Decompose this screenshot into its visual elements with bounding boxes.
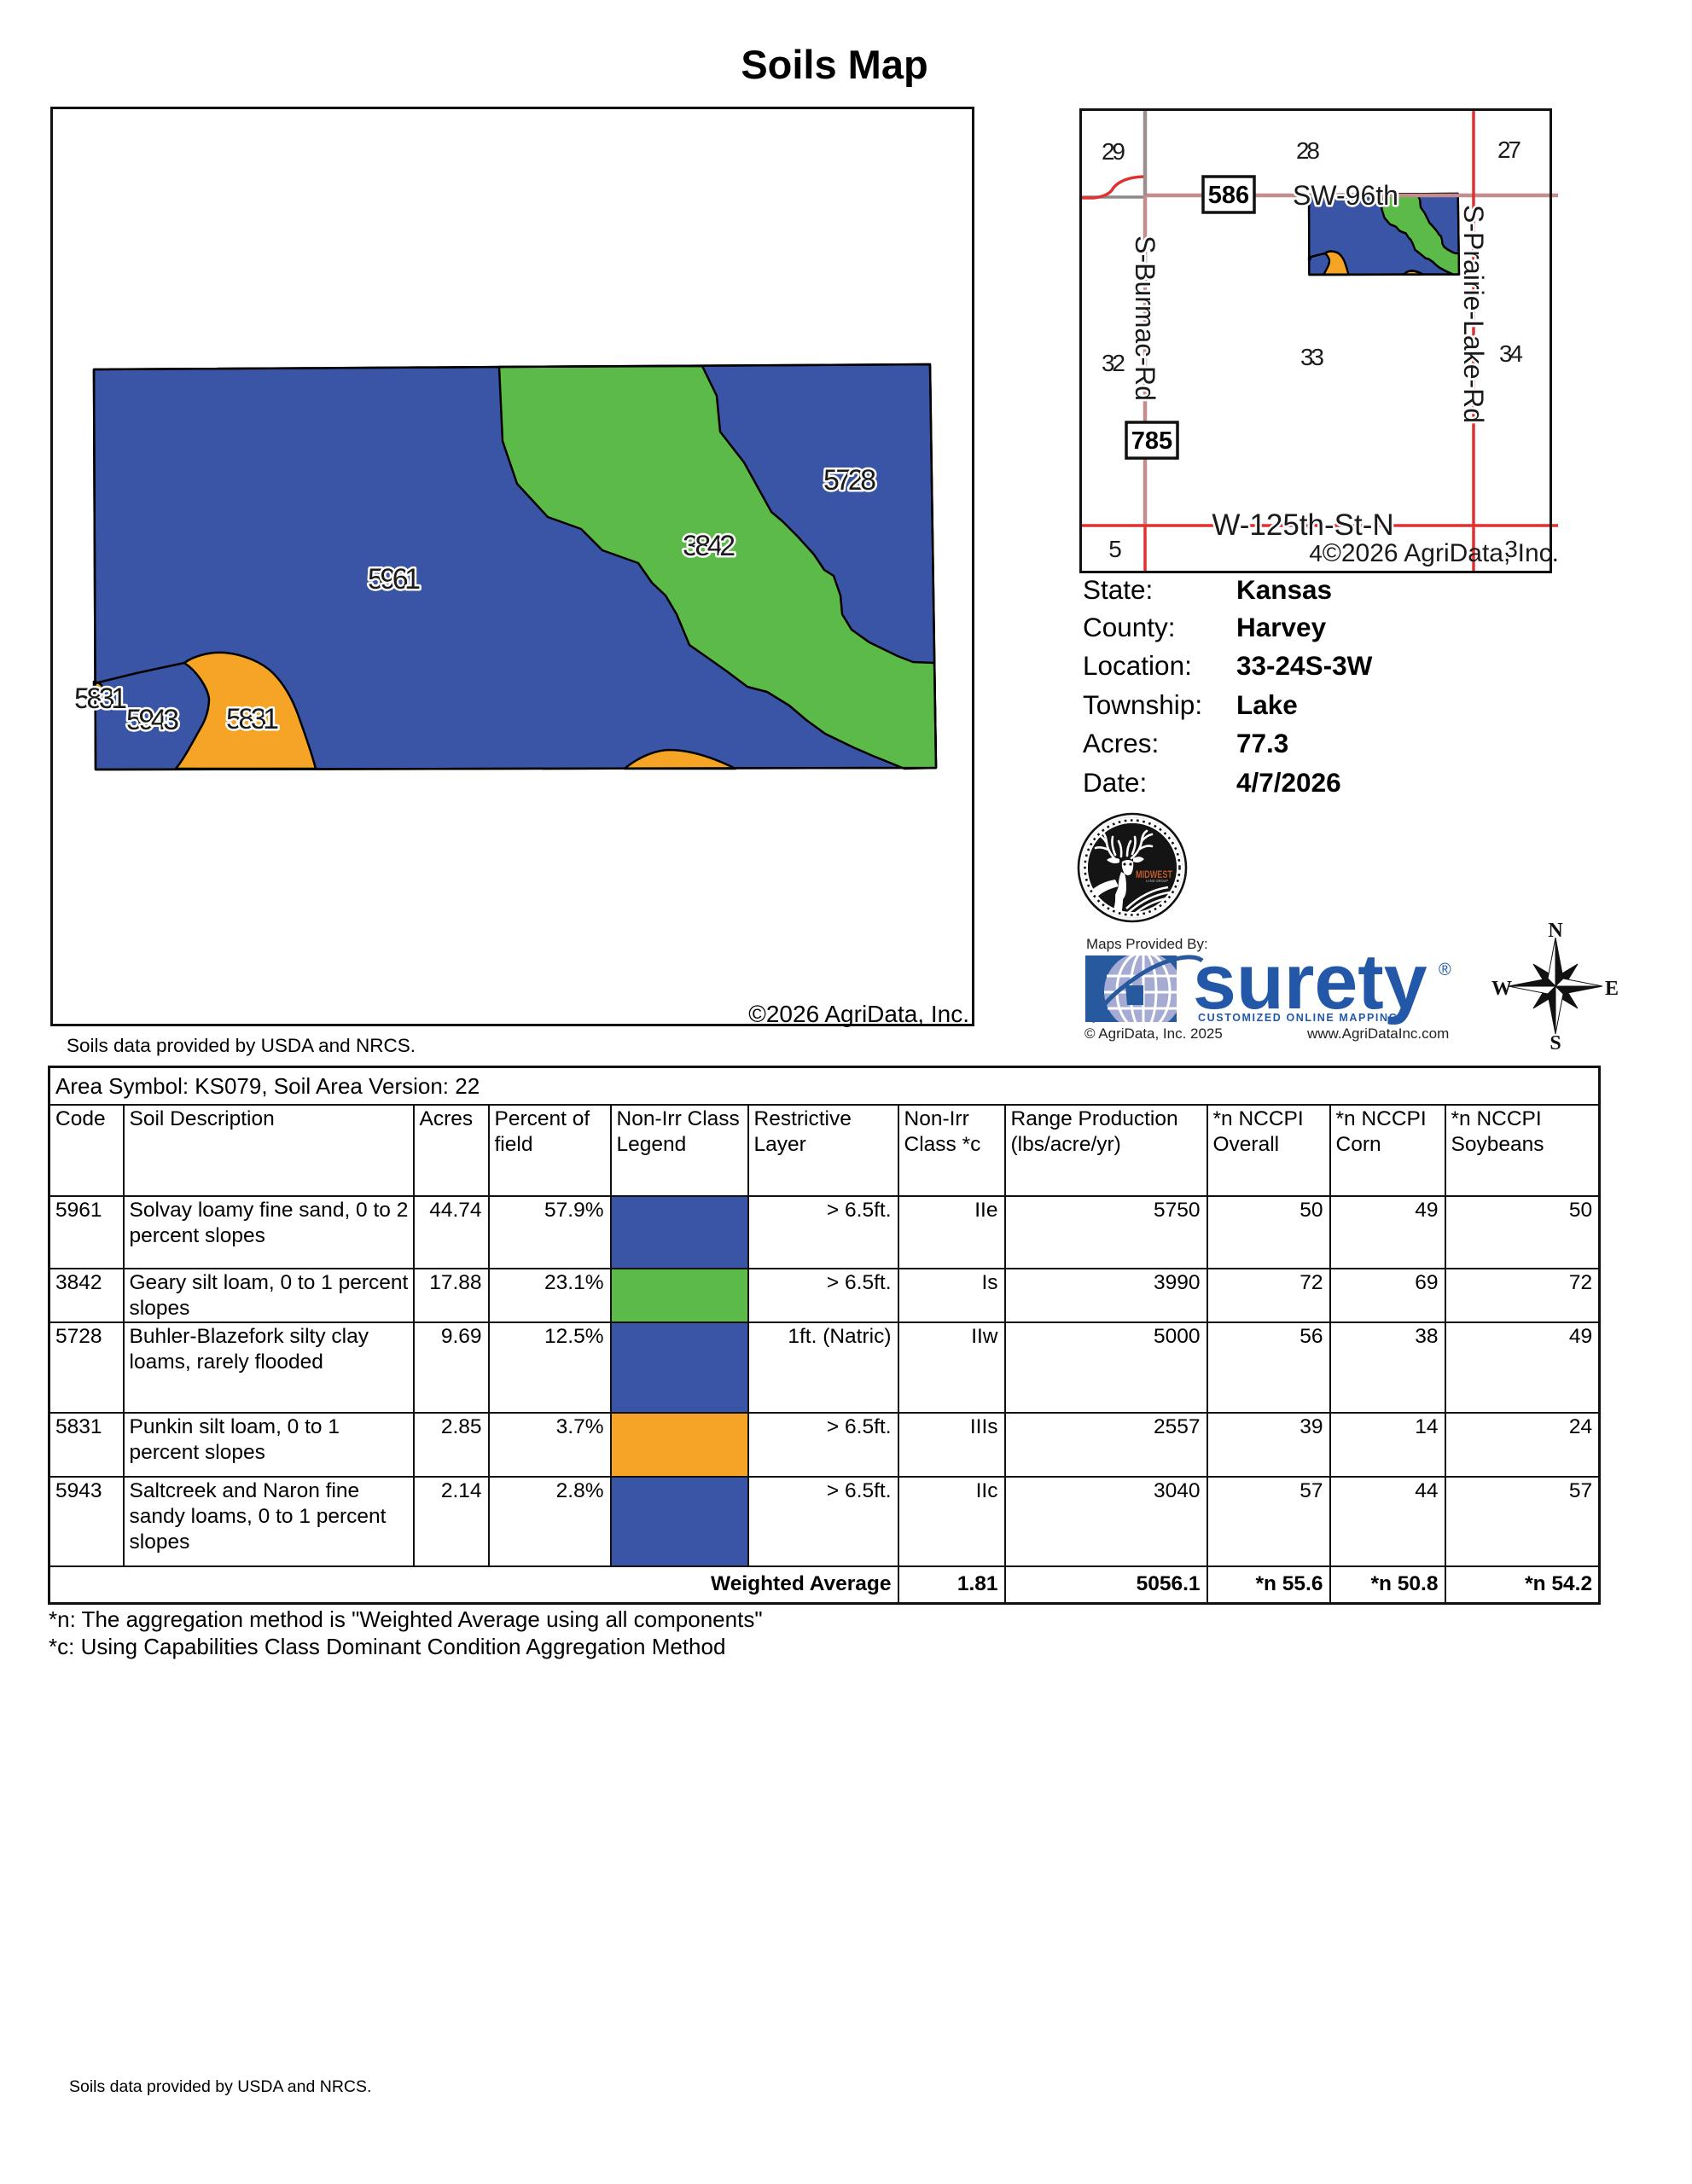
svg-text:®: ® <box>1439 961 1451 979</box>
svg-text:W-125th-St-N: W-125th-St-N <box>1212 508 1393 542</box>
svg-text:5: 5 <box>1108 536 1122 562</box>
svg-text:33: 33 <box>1300 344 1324 370</box>
svg-text:W: W <box>1491 978 1512 1000</box>
svg-text:CUSTOMIZED ONLINE MAPPING: CUSTOMIZED ONLINE MAPPING <box>1198 1012 1398 1024</box>
svg-text:LAND GROUP: LAND GROUP <box>1146 879 1168 883</box>
svg-text:4: 4 <box>1309 540 1323 566</box>
svg-text:34: 34 <box>1499 340 1523 367</box>
svg-text:S-Prairie-Lake-Rd: S-Prairie-Lake-Rd <box>1458 205 1489 423</box>
svg-text:29: 29 <box>1102 138 1125 165</box>
svg-text:27: 27 <box>1497 136 1521 163</box>
svg-text:©2026 AgriData, Inc.: ©2026 AgriData, Inc. <box>1323 539 1559 567</box>
svg-text:586: 586 <box>1208 182 1249 209</box>
svg-text:N: N <box>1548 920 1563 942</box>
svg-text:32: 32 <box>1102 350 1125 376</box>
svg-text:S-Burmac-Rd: S-Burmac-Rd <box>1130 235 1160 401</box>
svg-text:E: E <box>1605 978 1619 1000</box>
svg-text:SW-96th: SW-96th <box>1293 180 1398 211</box>
svg-text:28: 28 <box>1296 137 1320 164</box>
svg-text:785: 785 <box>1131 427 1172 455</box>
svg-text:S: S <box>1550 1032 1561 1054</box>
